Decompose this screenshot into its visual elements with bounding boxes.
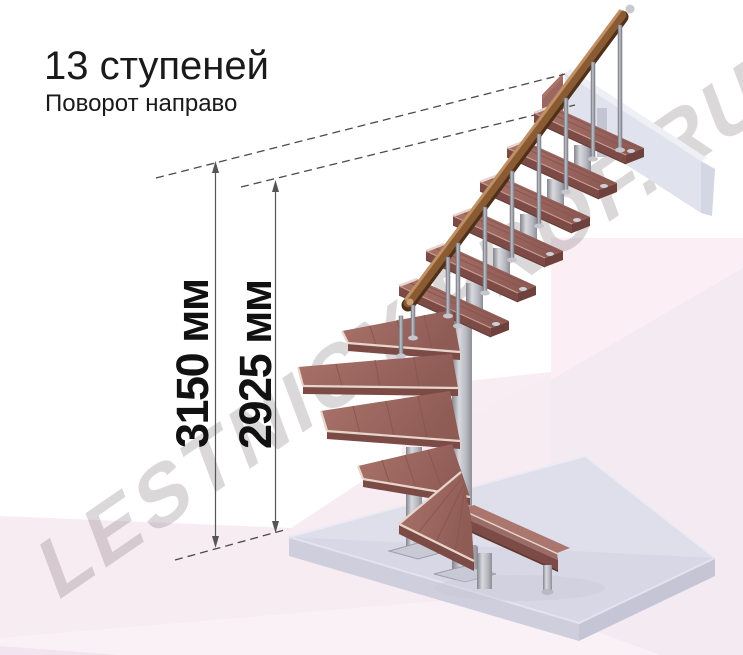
svg-text:Поворот направо: Поворот направо xyxy=(45,90,237,117)
svg-text:3150 мм: 3150 мм xyxy=(167,279,218,448)
svg-text:13 ступеней: 13 ступеней xyxy=(44,44,269,88)
svg-text:2925 мм: 2925 мм xyxy=(230,280,281,449)
